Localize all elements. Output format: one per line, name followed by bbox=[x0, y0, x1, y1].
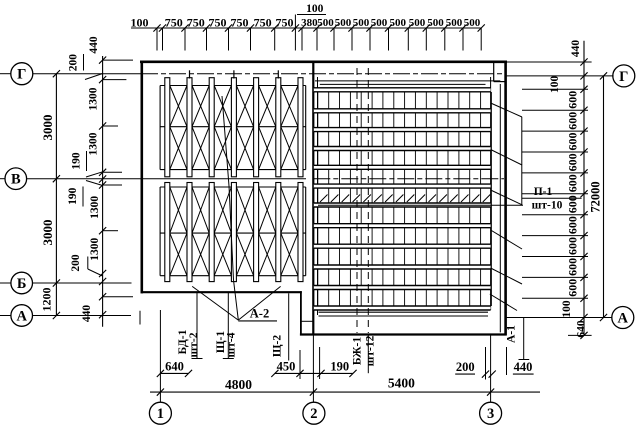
svg-text:750: 750 bbox=[187, 16, 205, 30]
svg-text:Б: Б bbox=[17, 276, 27, 292]
svg-text:600: 600 bbox=[566, 174, 580, 192]
svg-text:440: 440 bbox=[81, 305, 93, 323]
svg-text:Г: Г bbox=[619, 69, 628, 85]
svg-text:4800: 4800 bbox=[225, 377, 252, 392]
svg-text:БЖ-1: БЖ-1 bbox=[351, 337, 363, 366]
svg-text:200: 200 bbox=[70, 254, 82, 272]
svg-text:750: 750 bbox=[254, 16, 272, 30]
svg-text:1300: 1300 bbox=[89, 196, 101, 219]
svg-text:2: 2 bbox=[310, 406, 317, 422]
svg-text:200: 200 bbox=[456, 360, 475, 374]
svg-text:1300: 1300 bbox=[88, 132, 100, 155]
svg-text:500: 500 bbox=[335, 17, 352, 29]
svg-text:100: 100 bbox=[561, 300, 573, 318]
svg-text:500: 500 bbox=[371, 17, 388, 29]
svg-text:750: 750 bbox=[276, 16, 294, 30]
svg-text:шт-2: шт-2 bbox=[188, 332, 200, 357]
svg-text:А-2: А-2 bbox=[250, 306, 269, 320]
svg-text:600: 600 bbox=[566, 237, 580, 255]
svg-text:500: 500 bbox=[317, 17, 334, 29]
svg-text:А-1: А-1 bbox=[506, 325, 518, 343]
svg-text:5400: 5400 bbox=[388, 376, 415, 391]
svg-text:640: 640 bbox=[576, 320, 588, 338]
svg-text:500: 500 bbox=[353, 17, 370, 29]
svg-text:640: 640 bbox=[165, 359, 184, 373]
svg-text:3000: 3000 bbox=[40, 220, 55, 246]
svg-text:190: 190 bbox=[67, 187, 79, 205]
svg-text:190: 190 bbox=[330, 359, 349, 373]
svg-text:шт-10: шт-10 bbox=[532, 200, 563, 212]
svg-text:190: 190 bbox=[71, 152, 83, 170]
svg-text:440: 440 bbox=[88, 36, 100, 54]
svg-text:А: А bbox=[16, 308, 27, 324]
svg-text:600: 600 bbox=[566, 153, 580, 171]
svg-text:750: 750 bbox=[165, 16, 183, 30]
svg-text:600: 600 bbox=[566, 133, 580, 151]
svg-text:750: 750 bbox=[231, 16, 249, 30]
svg-text:600: 600 bbox=[566, 279, 580, 297]
svg-text:3: 3 bbox=[487, 406, 494, 422]
svg-text:100: 100 bbox=[549, 76, 561, 94]
svg-text:500: 500 bbox=[446, 17, 463, 29]
svg-text:шт-12: шт-12 bbox=[365, 335, 377, 366]
svg-text:600: 600 bbox=[566, 112, 580, 130]
svg-text:1200: 1200 bbox=[40, 288, 54, 312]
svg-text:500: 500 bbox=[464, 17, 481, 29]
svg-text:380: 380 bbox=[301, 17, 318, 29]
svg-text:100: 100 bbox=[131, 16, 149, 30]
svg-text:750: 750 bbox=[209, 16, 227, 30]
svg-text:72000: 72000 bbox=[589, 181, 603, 212]
svg-text:Щ-2: Щ-2 bbox=[272, 335, 284, 357]
svg-text:П-1: П-1 bbox=[534, 186, 553, 198]
svg-text:3000: 3000 bbox=[40, 115, 55, 141]
svg-text:600: 600 bbox=[566, 91, 580, 109]
svg-text:В: В bbox=[11, 172, 21, 188]
svg-text:100: 100 bbox=[306, 3, 324, 15]
svg-text:600: 600 bbox=[566, 258, 580, 276]
svg-text:шт-4: шт-4 bbox=[225, 332, 237, 357]
svg-text:1300: 1300 bbox=[88, 87, 100, 110]
svg-text:600: 600 bbox=[566, 216, 580, 234]
svg-text:450: 450 bbox=[277, 359, 296, 373]
svg-text:1300: 1300 bbox=[89, 237, 101, 260]
svg-text:1: 1 bbox=[157, 406, 164, 422]
svg-text:500: 500 bbox=[389, 17, 406, 29]
svg-text:Г: Г bbox=[17, 67, 26, 83]
svg-text:200: 200 bbox=[68, 54, 80, 72]
svg-text:440: 440 bbox=[514, 360, 533, 374]
svg-text:А: А bbox=[618, 310, 629, 326]
svg-text:500: 500 bbox=[409, 17, 426, 29]
svg-text:440: 440 bbox=[570, 40, 582, 58]
svg-text:500: 500 bbox=[427, 17, 444, 29]
